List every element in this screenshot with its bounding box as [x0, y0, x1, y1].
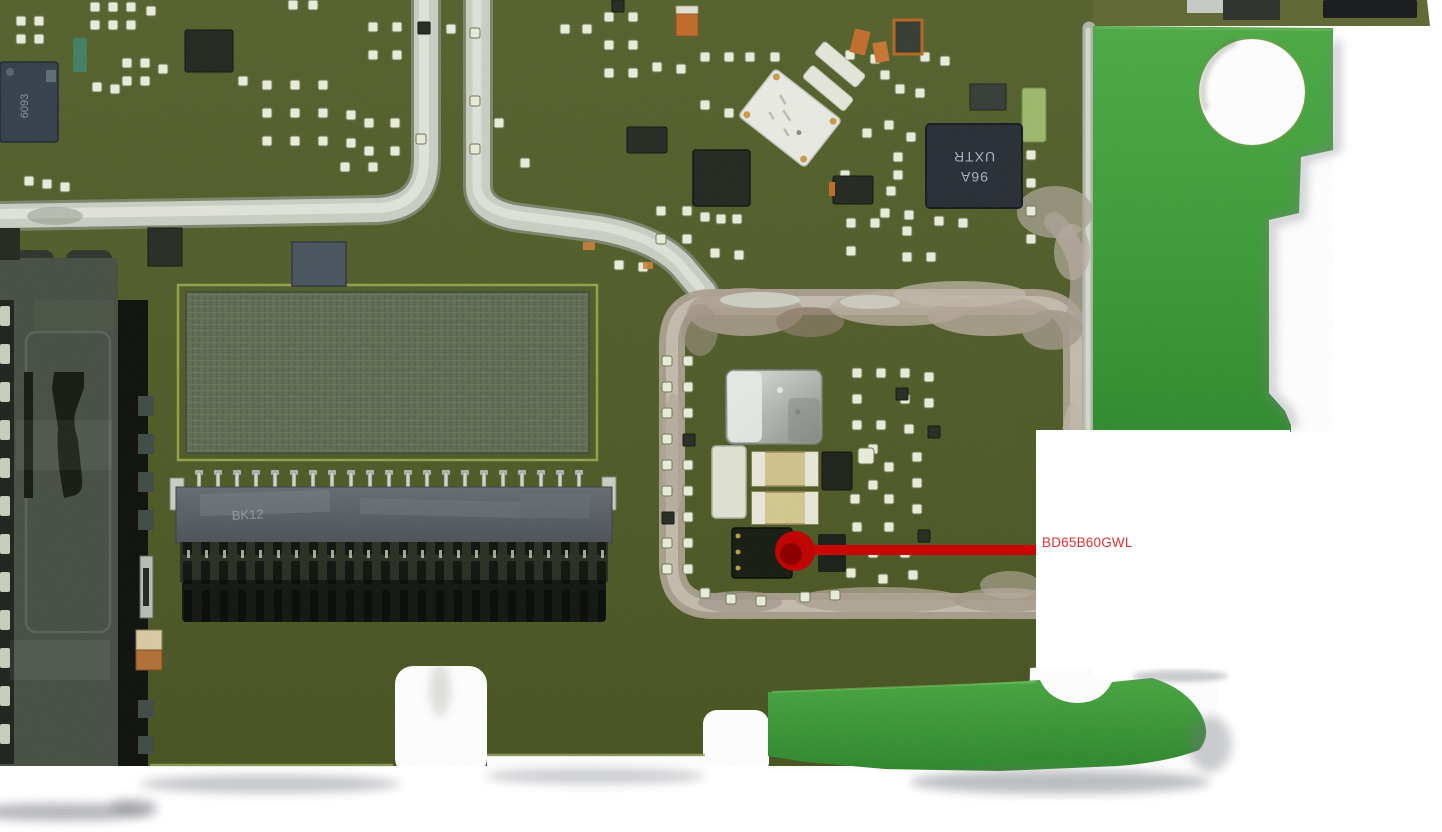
- pcb-photo-canvas: BK12: [0, 0, 1442, 832]
- callout-label-box: BD65B60GWL: [1036, 430, 1290, 668]
- photo-grain-overlay: [0, 0, 1442, 832]
- callout-dot-center: [780, 543, 802, 565]
- pcb-repair-photo: BK12: [0, 0, 1442, 832]
- callout-label: BD65B60GWL: [1042, 535, 1133, 551]
- callout-line: [795, 545, 1042, 555]
